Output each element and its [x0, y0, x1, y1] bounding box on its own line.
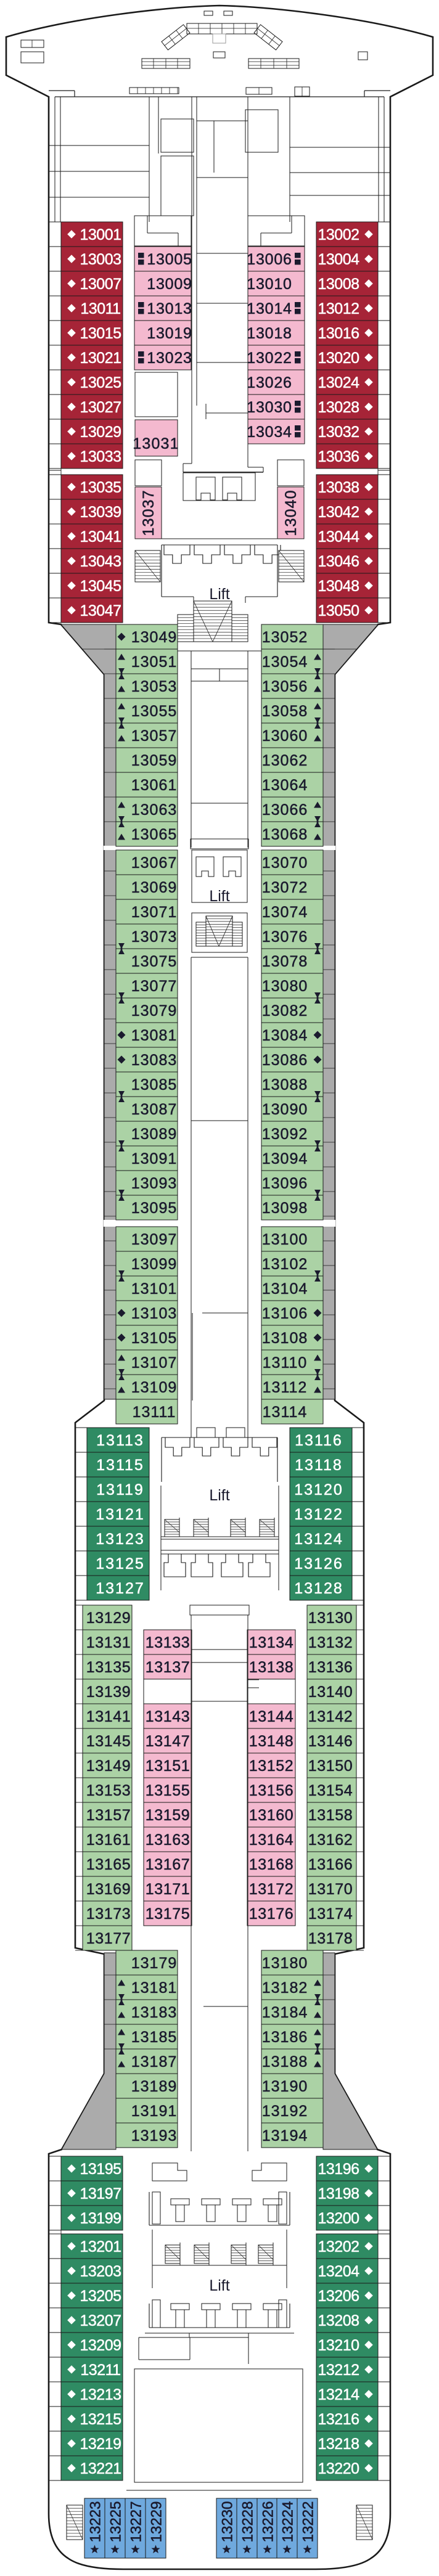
- svg-text:13079: 13079: [131, 1002, 178, 1020]
- svg-text:13080: 13080: [262, 978, 308, 995]
- svg-text:13018: 13018: [247, 325, 292, 342]
- svg-text:13076: 13076: [262, 928, 308, 946]
- svg-text:13065: 13065: [131, 826, 178, 843]
- svg-text:13069: 13069: [131, 879, 178, 896]
- svg-text:13192: 13192: [262, 2103, 308, 2120]
- svg-text:13050: 13050: [318, 602, 359, 619]
- svg-text:13057: 13057: [131, 727, 178, 745]
- svg-text:13041: 13041: [80, 528, 121, 546]
- svg-text:13009: 13009: [147, 276, 192, 293]
- svg-text:13034: 13034: [247, 423, 292, 441]
- svg-text:13127: 13127: [96, 1580, 145, 1597]
- svg-text:13038: 13038: [318, 479, 359, 496]
- svg-text:13102: 13102: [262, 1256, 308, 1273]
- svg-text:13015: 13015: [80, 325, 121, 342]
- svg-text:13136: 13136: [308, 1659, 353, 1676]
- svg-text:13201: 13201: [80, 2238, 121, 2255]
- svg-text:13122: 13122: [294, 1506, 343, 1523]
- svg-text:13200: 13200: [318, 2210, 359, 2227]
- svg-text:13169: 13169: [86, 1881, 131, 1898]
- svg-text:13220: 13220: [318, 2460, 359, 2477]
- svg-text:13037: 13037: [140, 489, 157, 536]
- svg-text:13178: 13178: [308, 1930, 353, 1947]
- svg-text:13025: 13025: [80, 374, 121, 391]
- svg-text:13133: 13133: [146, 1634, 191, 1651]
- svg-text:13128: 13128: [294, 1580, 343, 1597]
- svg-text:13084: 13084: [262, 1027, 308, 1044]
- svg-text:13157: 13157: [86, 1807, 131, 1824]
- svg-text:13006: 13006: [247, 251, 292, 268]
- svg-text:13056: 13056: [262, 678, 308, 695]
- svg-text:13175: 13175: [146, 1905, 191, 1923]
- svg-text:13119: 13119: [96, 1481, 144, 1499]
- svg-text:13105: 13105: [131, 1330, 178, 1347]
- svg-text:13215: 13215: [80, 2411, 121, 2428]
- svg-text:13186: 13186: [262, 2029, 308, 2046]
- svg-text:13109: 13109: [131, 1379, 178, 1396]
- svg-text:13094: 13094: [262, 1150, 308, 1167]
- svg-text:13168: 13168: [249, 1856, 294, 1873]
- svg-text:13164: 13164: [249, 1831, 294, 1849]
- svg-text:Lift: Lift: [209, 586, 229, 603]
- svg-text:13064: 13064: [262, 777, 308, 794]
- svg-text:13182: 13182: [262, 1979, 308, 1997]
- svg-text:13081: 13081: [131, 1027, 178, 1044]
- svg-text:13123: 13123: [96, 1531, 145, 1548]
- svg-text:13073: 13073: [131, 928, 178, 946]
- svg-text:13184: 13184: [262, 2004, 308, 2021]
- svg-text:13194: 13194: [262, 2127, 308, 2145]
- svg-text:13181: 13181: [131, 1979, 178, 1997]
- svg-text:13213: 13213: [80, 2386, 121, 2403]
- svg-text:13179: 13179: [131, 1955, 178, 1972]
- svg-text:13139: 13139: [86, 1683, 131, 1701]
- svg-text:13198: 13198: [318, 2185, 359, 2202]
- svg-text:13166: 13166: [308, 1856, 353, 1873]
- svg-text:13033: 13033: [80, 448, 121, 465]
- svg-text:13137: 13137: [146, 1659, 191, 1676]
- svg-text:13197: 13197: [80, 2185, 121, 2202]
- svg-text:13174: 13174: [308, 1905, 353, 1923]
- svg-text:13040: 13040: [282, 489, 300, 536]
- svg-text:13212: 13212: [318, 2361, 359, 2379]
- svg-text:13023: 13023: [147, 350, 192, 367]
- svg-text:Lift: Lift: [209, 1487, 229, 1504]
- svg-text:13114: 13114: [263, 1404, 308, 1421]
- svg-text:13070: 13070: [262, 854, 308, 872]
- svg-text:13001: 13001: [80, 226, 121, 243]
- svg-text:13226: 13226: [260, 2501, 277, 2543]
- svg-text:13124: 13124: [294, 1531, 343, 1548]
- svg-text:13031: 13031: [133, 435, 179, 452]
- svg-text:13007: 13007: [80, 276, 121, 293]
- svg-text:13142: 13142: [308, 1708, 353, 1725]
- svg-text:Lift: Lift: [209, 888, 229, 905]
- svg-text:13053: 13053: [131, 678, 178, 695]
- svg-text:13029: 13029: [80, 423, 121, 441]
- svg-text:13116: 13116: [295, 1432, 343, 1449]
- svg-text:13089: 13089: [131, 1126, 178, 1143]
- svg-text:13229: 13229: [149, 2501, 165, 2543]
- svg-text:13019: 13019: [147, 325, 192, 342]
- svg-text:13028: 13028: [318, 399, 359, 416]
- svg-text:13072: 13072: [262, 879, 308, 896]
- svg-text:13106: 13106: [262, 1305, 308, 1322]
- svg-text:13062: 13062: [262, 752, 308, 769]
- svg-text:13012: 13012: [318, 300, 359, 317]
- svg-text:13125: 13125: [96, 1555, 145, 1572]
- svg-text:13195: 13195: [80, 2161, 121, 2178]
- svg-text:13162: 13162: [308, 1831, 353, 1849]
- svg-text:13047: 13047: [80, 602, 121, 619]
- svg-text:13049: 13049: [131, 629, 178, 646]
- svg-text:13004: 13004: [318, 251, 359, 268]
- svg-text:13100: 13100: [262, 1231, 308, 1248]
- svg-text:13221: 13221: [80, 2460, 121, 2477]
- svg-text:13003: 13003: [80, 251, 121, 268]
- svg-text:13131: 13131: [86, 1634, 131, 1651]
- svg-text:13165: 13165: [86, 1856, 131, 1873]
- svg-text:13010: 13010: [247, 276, 292, 293]
- svg-text:13138: 13138: [249, 1659, 294, 1676]
- svg-text:13092: 13092: [262, 1126, 308, 1143]
- svg-text:13206: 13206: [318, 2288, 359, 2305]
- svg-text:13030: 13030: [247, 399, 292, 416]
- svg-text:13183: 13183: [131, 2004, 178, 2021]
- svg-text:13176: 13176: [249, 1905, 294, 1923]
- svg-text:13058: 13058: [262, 703, 308, 720]
- svg-text:13077: 13077: [131, 978, 178, 995]
- svg-text:13134: 13134: [249, 1634, 294, 1651]
- svg-text:13208: 13208: [318, 2312, 359, 2329]
- svg-text:13054: 13054: [262, 653, 308, 671]
- svg-text:13027: 13027: [80, 399, 121, 416]
- svg-text:13211: 13211: [80, 2361, 120, 2379]
- svg-text:13097: 13097: [131, 1231, 178, 1248]
- svg-text:13143: 13143: [146, 1708, 191, 1725]
- svg-text:13230: 13230: [219, 2501, 236, 2543]
- svg-text:13156: 13156: [249, 1782, 294, 1799]
- svg-text:13161: 13161: [86, 1831, 131, 1849]
- svg-text:13225: 13225: [108, 2501, 125, 2543]
- svg-text:13121: 13121: [96, 1506, 145, 1523]
- svg-text:13087: 13087: [131, 1101, 178, 1118]
- svg-text:13052: 13052: [262, 629, 308, 646]
- svg-text:13020: 13020: [318, 350, 359, 367]
- svg-text:13091: 13091: [131, 1150, 178, 1167]
- svg-text:13014: 13014: [247, 300, 292, 317]
- svg-text:13024: 13024: [318, 374, 359, 391]
- svg-text:13111: 13111: [133, 1404, 176, 1421]
- svg-text:13148: 13148: [249, 1733, 294, 1750]
- svg-text:13140: 13140: [308, 1683, 353, 1701]
- svg-text:13207: 13207: [80, 2312, 121, 2329]
- svg-text:13126: 13126: [294, 1555, 343, 1572]
- svg-text:13042: 13042: [318, 504, 359, 521]
- svg-text:13055: 13055: [131, 703, 178, 720]
- svg-text:13216: 13216: [318, 2411, 359, 2428]
- svg-text:Lift: Lift: [209, 2277, 229, 2294]
- svg-text:13093: 13093: [131, 1175, 178, 1192]
- svg-text:13227: 13227: [128, 2501, 145, 2543]
- svg-text:13210: 13210: [318, 2337, 359, 2354]
- svg-text:13199: 13199: [80, 2210, 121, 2227]
- svg-text:13153: 13153: [86, 1782, 131, 1799]
- svg-text:13151: 13151: [146, 1757, 191, 1775]
- svg-text:13074: 13074: [262, 904, 308, 921]
- svg-text:13219: 13219: [80, 2435, 121, 2453]
- svg-text:13088: 13088: [262, 1076, 308, 1094]
- svg-text:13048: 13048: [318, 578, 359, 595]
- svg-text:13016: 13016: [318, 325, 359, 342]
- svg-text:13120: 13120: [294, 1481, 343, 1499]
- svg-text:13203: 13203: [80, 2263, 121, 2280]
- svg-text:13202: 13202: [318, 2238, 359, 2255]
- svg-text:13204: 13204: [318, 2263, 359, 2280]
- svg-text:13135: 13135: [86, 1659, 131, 1676]
- svg-text:13172: 13172: [249, 1881, 294, 1898]
- svg-text:13110: 13110: [263, 1354, 308, 1372]
- svg-text:13158: 13158: [308, 1807, 353, 1824]
- svg-text:13013: 13013: [147, 300, 192, 317]
- svg-text:13032: 13032: [318, 423, 359, 441]
- svg-text:13005: 13005: [147, 251, 192, 268]
- svg-text:13063: 13063: [131, 801, 178, 819]
- svg-text:13113: 13113: [96, 1432, 144, 1449]
- svg-text:13085: 13085: [131, 1076, 178, 1094]
- svg-text:13008: 13008: [318, 276, 359, 293]
- svg-text:13129: 13129: [86, 1609, 131, 1627]
- svg-text:13160: 13160: [249, 1807, 294, 1824]
- svg-text:13224: 13224: [280, 2501, 297, 2543]
- svg-text:13115: 13115: [96, 1457, 144, 1474]
- svg-text:13022: 13022: [247, 350, 292, 367]
- svg-text:13103: 13103: [131, 1305, 178, 1322]
- svg-text:13075: 13075: [131, 953, 178, 970]
- svg-text:13146: 13146: [308, 1733, 353, 1750]
- svg-text:13130: 13130: [308, 1609, 353, 1627]
- svg-text:13066: 13066: [262, 801, 308, 819]
- svg-text:13141: 13141: [86, 1708, 131, 1725]
- svg-text:13214: 13214: [318, 2386, 359, 2403]
- svg-text:13068: 13068: [262, 826, 308, 843]
- svg-text:13096: 13096: [262, 1175, 308, 1192]
- svg-text:13205: 13205: [80, 2288, 121, 2305]
- svg-text:13163: 13163: [146, 1831, 191, 1849]
- svg-text:13209: 13209: [80, 2337, 121, 2354]
- svg-text:13104: 13104: [262, 1280, 308, 1298]
- svg-text:13159: 13159: [146, 1807, 191, 1824]
- svg-text:13223: 13223: [88, 2501, 104, 2543]
- svg-text:13150: 13150: [308, 1757, 353, 1775]
- svg-text:13171: 13171: [146, 1881, 191, 1898]
- svg-text:13193: 13193: [131, 2127, 178, 2145]
- svg-text:13099: 13099: [131, 1256, 178, 1273]
- svg-text:13218: 13218: [318, 2435, 359, 2453]
- svg-text:13083: 13083: [131, 1052, 178, 1069]
- svg-text:13152: 13152: [249, 1757, 294, 1775]
- svg-text:13044: 13044: [318, 528, 359, 546]
- svg-text:13095: 13095: [131, 1200, 178, 1217]
- svg-text:13185: 13185: [131, 2029, 178, 2046]
- svg-text:13035: 13035: [80, 479, 121, 496]
- svg-text:13118: 13118: [295, 1457, 343, 1474]
- svg-text:13002: 13002: [318, 226, 359, 243]
- svg-text:13101: 13101: [131, 1280, 178, 1298]
- svg-text:13154: 13154: [308, 1782, 353, 1799]
- svg-text:13051: 13051: [131, 653, 178, 671]
- svg-text:13196: 13196: [318, 2161, 359, 2178]
- svg-text:13061: 13061: [131, 777, 178, 794]
- svg-text:13149: 13149: [86, 1757, 131, 1775]
- svg-text:13086: 13086: [262, 1052, 308, 1069]
- svg-text:13067: 13067: [131, 854, 178, 872]
- svg-text:13039: 13039: [80, 504, 121, 521]
- svg-text:13177: 13177: [86, 1930, 131, 1947]
- svg-text:13107: 13107: [131, 1354, 178, 1372]
- svg-text:13190: 13190: [262, 2078, 308, 2095]
- svg-text:13108: 13108: [262, 1330, 308, 1347]
- svg-text:13180: 13180: [262, 1955, 308, 1972]
- svg-text:13082: 13082: [262, 1002, 308, 1020]
- svg-text:13188: 13188: [262, 2053, 308, 2071]
- svg-text:13043: 13043: [80, 553, 121, 570]
- svg-text:13222: 13222: [300, 2501, 317, 2543]
- svg-text:13026: 13026: [247, 374, 292, 391]
- svg-text:13170: 13170: [308, 1881, 353, 1898]
- svg-text:13144: 13144: [249, 1708, 294, 1725]
- svg-text:13045: 13045: [80, 578, 121, 595]
- svg-text:13155: 13155: [146, 1782, 191, 1799]
- svg-text:13059: 13059: [131, 752, 178, 769]
- svg-text:13060: 13060: [262, 727, 308, 745]
- svg-text:13071: 13071: [131, 904, 178, 921]
- svg-text:13147: 13147: [146, 1733, 191, 1750]
- svg-text:13191: 13191: [131, 2103, 178, 2120]
- svg-text:13036: 13036: [318, 448, 359, 465]
- svg-text:13132: 13132: [308, 1634, 353, 1651]
- svg-text:13112: 13112: [263, 1379, 308, 1396]
- svg-text:13173: 13173: [86, 1905, 131, 1923]
- svg-text:13021: 13021: [80, 350, 121, 367]
- svg-text:13167: 13167: [146, 1856, 191, 1873]
- svg-text:13046: 13046: [318, 553, 359, 570]
- svg-text:13078: 13078: [262, 953, 308, 970]
- svg-text:13145: 13145: [86, 1733, 131, 1750]
- svg-text:13228: 13228: [240, 2501, 256, 2543]
- svg-text:13011: 13011: [80, 300, 120, 317]
- svg-text:13098: 13098: [262, 1200, 308, 1217]
- svg-text:13187: 13187: [131, 2053, 178, 2071]
- svg-text:13189: 13189: [131, 2078, 178, 2095]
- svg-text:13090: 13090: [262, 1101, 308, 1118]
